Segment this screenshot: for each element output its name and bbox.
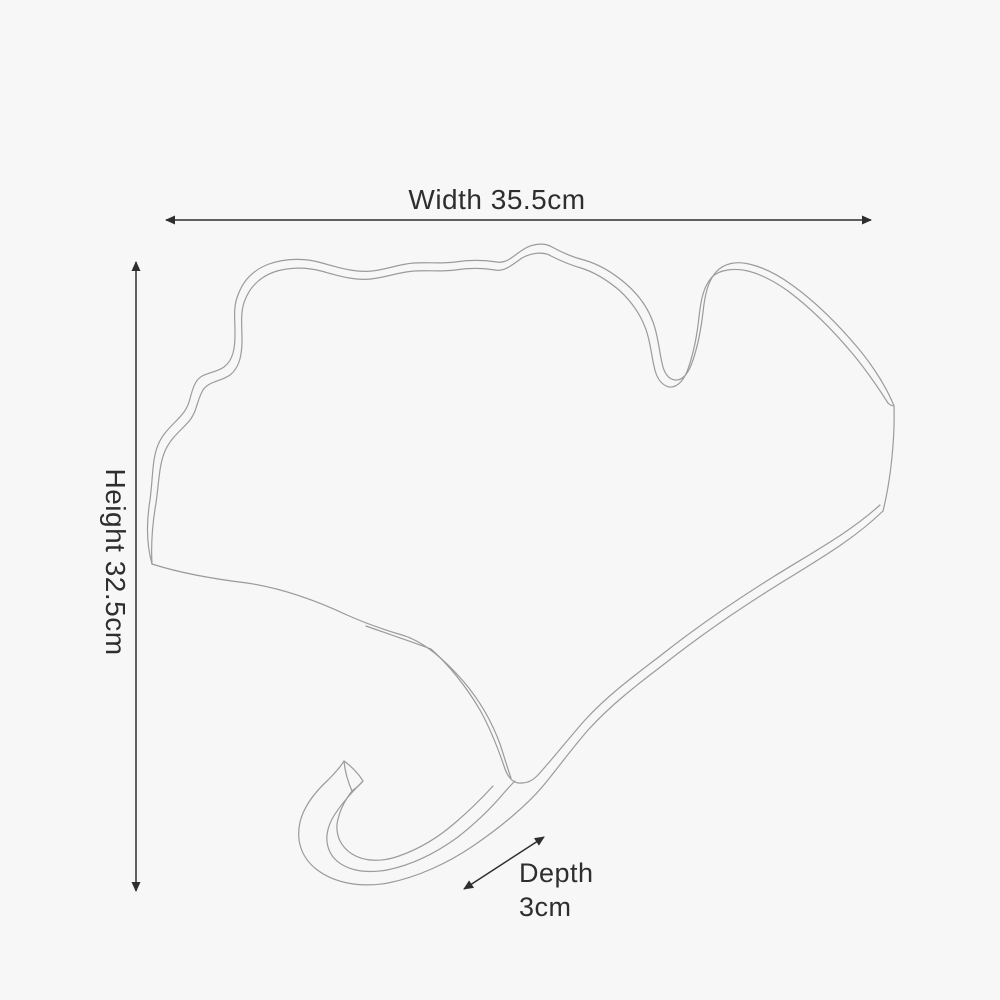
leaf-outer-edge [148,244,894,564]
leaf-bottom-sweep-and-curl-outer [299,511,883,885]
width-dimension: Width 35.5cm [166,184,871,220]
width-dimension-label: Width 35.5cm [408,184,585,215]
leaf-bottom-left-edge-parallel [366,626,522,783]
leaf-inner-edge [152,253,894,564]
leaf-outline-drawing [148,244,895,885]
dimension-diagram: Width 35.5cm Height 32.5cm Depth 3cm [0,0,1000,1000]
height-dimension: Height 32.5cm [100,262,136,891]
stem-curl-inner-line [337,786,493,860]
dimension-diagram-page: Width 35.5cm Height 32.5cm Depth 3cm [0,0,1000,1000]
stem-curl-middle-line [327,781,515,871]
leaf-bottom-sweep-inner [522,505,880,783]
depth-dimension: Depth 3cm [464,837,594,922]
stem-curl-tip-face [344,761,363,791]
depth-dimension-label-line1: Depth [519,858,594,888]
leaf-bottom-left-edge [152,564,511,778]
height-dimension-label: Height 32.5cm [100,468,131,655]
leaf-right-edge [883,406,894,511]
depth-dimension-label-line2: 3cm [519,892,572,922]
